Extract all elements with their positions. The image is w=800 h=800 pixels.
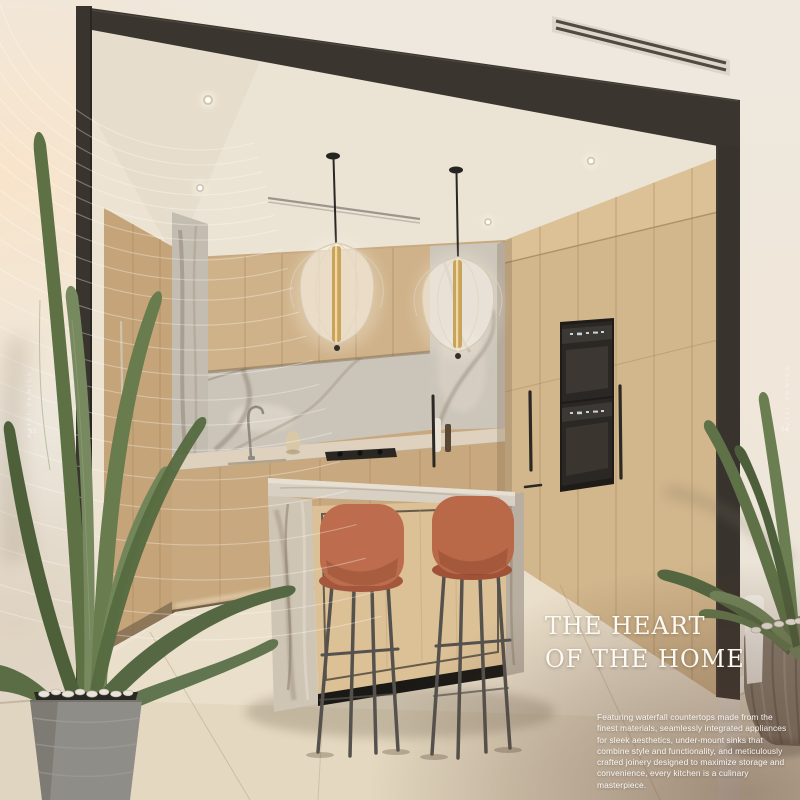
page-number-left: 53 bbox=[29, 429, 37, 435]
kitchen-render bbox=[0, 0, 800, 800]
page-title-line2: OF THE HOME bbox=[545, 643, 745, 676]
page-number-right: 54 bbox=[781, 427, 789, 433]
brochure-page: THE HEART OF THE HOME Featuring waterfal… bbox=[0, 0, 800, 800]
watermark-left: AZIZI VENICE bbox=[27, 362, 33, 438]
watermark-right: AZIZI VENICE bbox=[785, 356, 791, 432]
page-title-line1: THE HEART bbox=[545, 610, 745, 643]
left-pot bbox=[30, 689, 142, 800]
description-text: Featuring waterfall countertops made fro… bbox=[597, 712, 795, 791]
wall-diffuser-vent bbox=[552, 16, 730, 76]
double-wall-ovens bbox=[560, 318, 614, 492]
page-title: THE HEART OF THE HOME bbox=[545, 610, 745, 676]
